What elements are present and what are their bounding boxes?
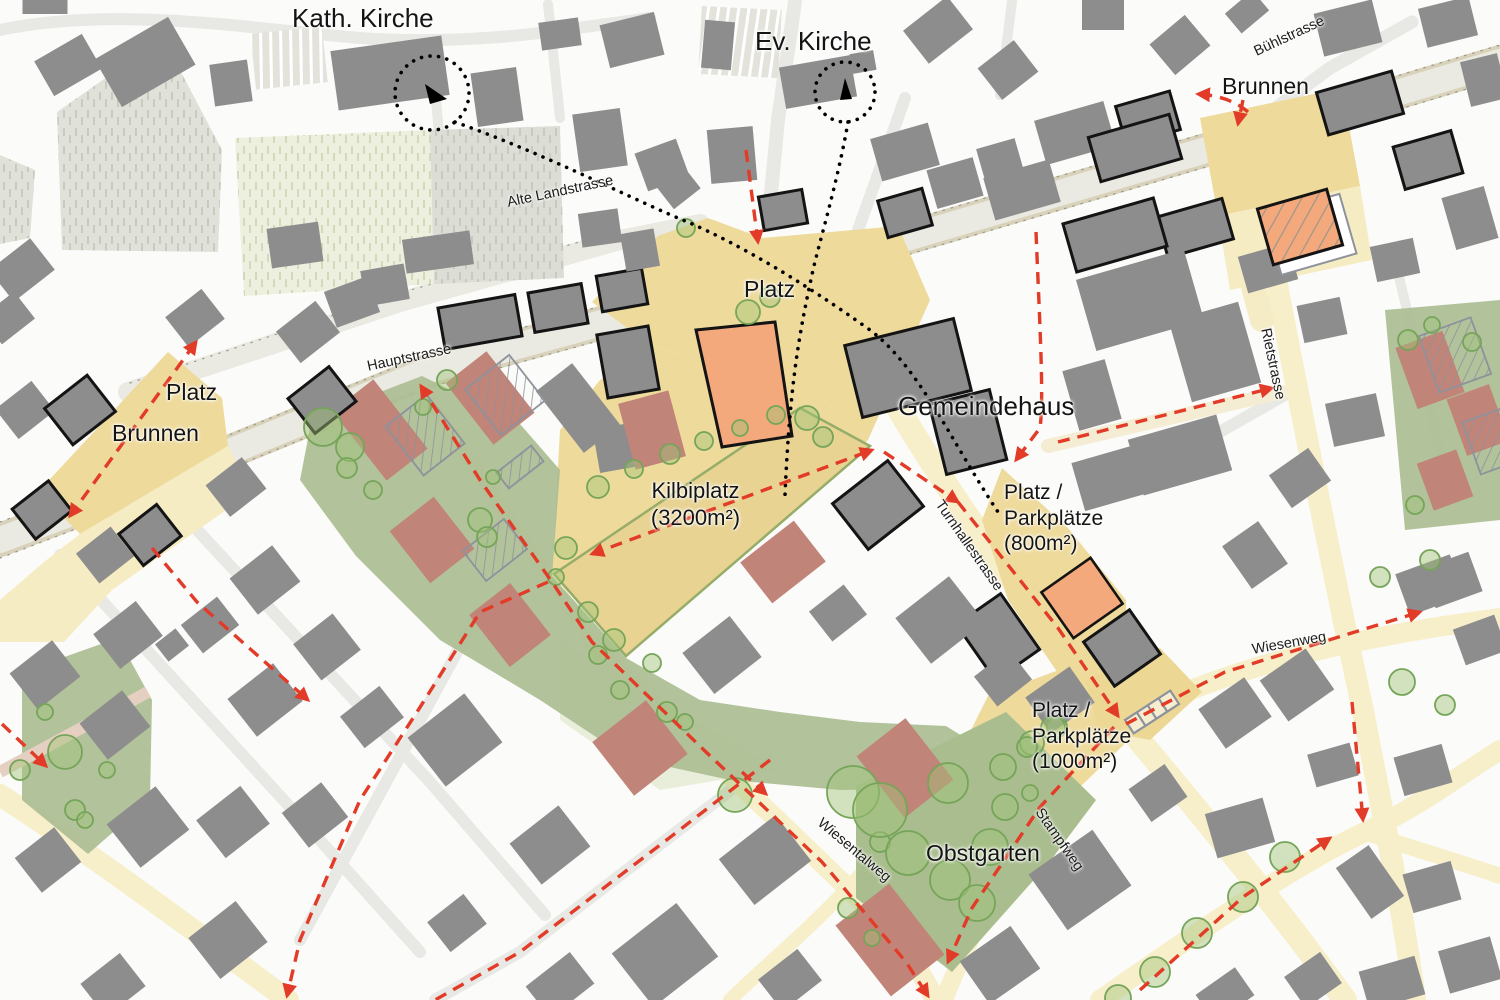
tree-icon bbox=[587, 476, 609, 498]
building bbox=[230, 545, 301, 614]
building-street-front bbox=[833, 461, 924, 550]
label-parkplaetze-800: Platz / Parkplätze (800m²) bbox=[1004, 480, 1103, 557]
tree-icon bbox=[1370, 567, 1390, 587]
tree-icon bbox=[813, 427, 833, 447]
tree-icon bbox=[437, 370, 457, 390]
building bbox=[282, 782, 348, 847]
building-street-front bbox=[1157, 198, 1234, 257]
building bbox=[276, 301, 340, 363]
building-street-front bbox=[596, 268, 648, 311]
building-street-front bbox=[528, 284, 588, 333]
tree-icon bbox=[1463, 333, 1481, 351]
label-platz-center: Platz bbox=[744, 277, 795, 302]
building bbox=[1370, 238, 1421, 282]
pp1000-line1: Platz / bbox=[1032, 698, 1131, 724]
tree-icon bbox=[477, 527, 497, 547]
pp800-line2: Parkplätze bbox=[1004, 506, 1103, 532]
tree-icon bbox=[643, 654, 661, 672]
tree-icon bbox=[695, 432, 713, 450]
tree-icon bbox=[1398, 330, 1418, 350]
label-platz-left: Platz bbox=[166, 380, 217, 405]
kilbiplatz-area: (3200m²) bbox=[608, 505, 783, 532]
building bbox=[538, 17, 582, 50]
tree-icon bbox=[660, 444, 680, 464]
site-plan-map: Kath. Kirche Ev. Kirche Brunnen Platz Ge… bbox=[0, 0, 1500, 1000]
building bbox=[1082, 0, 1124, 30]
label-kath-kirche: Kath. Kirche bbox=[292, 4, 434, 32]
building bbox=[165, 289, 225, 347]
building-street-front bbox=[758, 189, 807, 230]
building bbox=[209, 60, 252, 107]
label-gemeindehaus: Gemeindehaus bbox=[898, 392, 1074, 420]
tree-icon bbox=[304, 408, 342, 446]
building-street-front bbox=[1316, 71, 1403, 135]
building bbox=[293, 613, 361, 680]
building bbox=[266, 222, 323, 269]
tree-icon bbox=[555, 537, 577, 559]
building bbox=[1297, 297, 1348, 343]
tree-icon bbox=[1022, 785, 1038, 801]
building bbox=[196, 786, 270, 858]
label-parkplaetze-1000: Platz / Parkplätze (1000m²) bbox=[1032, 698, 1131, 775]
tree-icon bbox=[578, 602, 598, 622]
building bbox=[612, 903, 718, 1000]
tree-icon bbox=[1389, 669, 1415, 695]
tree-icon bbox=[336, 433, 364, 461]
tree-icon bbox=[10, 760, 30, 780]
tree-icon bbox=[77, 812, 93, 828]
building bbox=[181, 597, 239, 654]
building bbox=[572, 108, 628, 172]
tree-icon bbox=[37, 704, 53, 720]
building bbox=[1402, 861, 1461, 913]
building bbox=[360, 263, 410, 306]
building bbox=[809, 584, 867, 641]
building-street-front bbox=[597, 326, 659, 398]
tree-icon bbox=[990, 754, 1016, 780]
tree-icon bbox=[625, 460, 643, 478]
building bbox=[1307, 743, 1359, 788]
building bbox=[1205, 798, 1275, 859]
label-kilbiplatz: Kilbiplatz (3200m²) bbox=[608, 478, 783, 532]
building-street-front bbox=[1393, 131, 1463, 190]
building bbox=[80, 953, 145, 1000]
tree-icon bbox=[415, 399, 431, 415]
tree-icon bbox=[99, 762, 115, 778]
building bbox=[1222, 521, 1288, 589]
building bbox=[23, 0, 68, 14]
building bbox=[510, 805, 591, 884]
building bbox=[701, 20, 735, 70]
tree-icon bbox=[1406, 496, 1424, 514]
tree-icon bbox=[337, 458, 357, 478]
building bbox=[1325, 393, 1385, 447]
building bbox=[526, 952, 595, 1000]
tree-icon bbox=[767, 406, 785, 424]
tree-icon bbox=[611, 681, 629, 699]
tree-icon bbox=[853, 783, 907, 837]
building bbox=[1359, 956, 1426, 1000]
tree-icon bbox=[677, 219, 695, 237]
building bbox=[578, 208, 622, 247]
building bbox=[1196, 967, 1255, 1000]
tree-icon bbox=[795, 406, 819, 430]
building bbox=[0, 238, 55, 302]
tree-icon bbox=[48, 735, 82, 769]
pp800-line1: Platz / bbox=[1004, 480, 1103, 506]
tree-icon bbox=[364, 481, 382, 499]
building bbox=[620, 228, 660, 271]
pp800-line3: (800m²) bbox=[1004, 531, 1103, 557]
tree-icon bbox=[732, 420, 748, 436]
tree-icon bbox=[1424, 317, 1440, 333]
building bbox=[682, 616, 761, 694]
building bbox=[0, 292, 35, 345]
tree-icon bbox=[603, 629, 625, 651]
building bbox=[227, 663, 302, 737]
building bbox=[1438, 936, 1500, 993]
building bbox=[427, 894, 487, 952]
tree-icon bbox=[736, 300, 760, 324]
building bbox=[895, 576, 984, 664]
tree-icon bbox=[864, 930, 880, 946]
label-brunnen-left: Brunnen bbox=[112, 421, 199, 446]
building bbox=[1150, 15, 1211, 75]
tree-icon bbox=[838, 898, 858, 918]
building bbox=[34, 34, 102, 96]
building bbox=[470, 67, 523, 127]
pp1000-line2: Parkplätze bbox=[1032, 724, 1131, 750]
label-obstgarten: Obstgarten bbox=[926, 841, 1040, 866]
building bbox=[903, 0, 973, 64]
tree-icon bbox=[1182, 918, 1212, 948]
label-ev-kirche: Ev. Kirche bbox=[755, 27, 872, 55]
building bbox=[1418, 0, 1478, 48]
label-brunnen-top: Brunnen bbox=[1222, 74, 1309, 99]
tree-icon bbox=[718, 778, 752, 812]
tree-icon bbox=[1140, 957, 1170, 987]
tree-icon bbox=[1420, 550, 1440, 570]
tree-icon bbox=[1435, 695, 1455, 715]
tree-icon bbox=[486, 470, 500, 484]
kilbiplatz-name: Kilbiplatz bbox=[608, 478, 783, 505]
building bbox=[1441, 186, 1498, 250]
building bbox=[1460, 53, 1500, 107]
pp1000-line3: (1000m²) bbox=[1032, 749, 1131, 775]
building bbox=[1225, 0, 1269, 34]
tree-icon bbox=[886, 831, 930, 875]
tree-icon bbox=[928, 763, 968, 803]
tree-icon bbox=[992, 794, 1018, 820]
building bbox=[978, 40, 1039, 100]
